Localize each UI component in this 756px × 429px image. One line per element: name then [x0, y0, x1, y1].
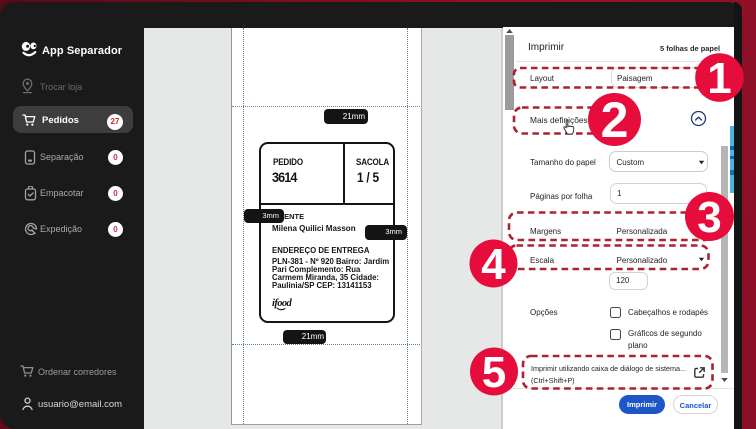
svg-text:2: 2 — [601, 92, 629, 148]
svg-text:5: 5 — [482, 348, 506, 397]
svg-text:4: 4 — [481, 240, 506, 289]
svg-text:1: 1 — [707, 54, 731, 103]
svg-text:3: 3 — [697, 193, 721, 242]
